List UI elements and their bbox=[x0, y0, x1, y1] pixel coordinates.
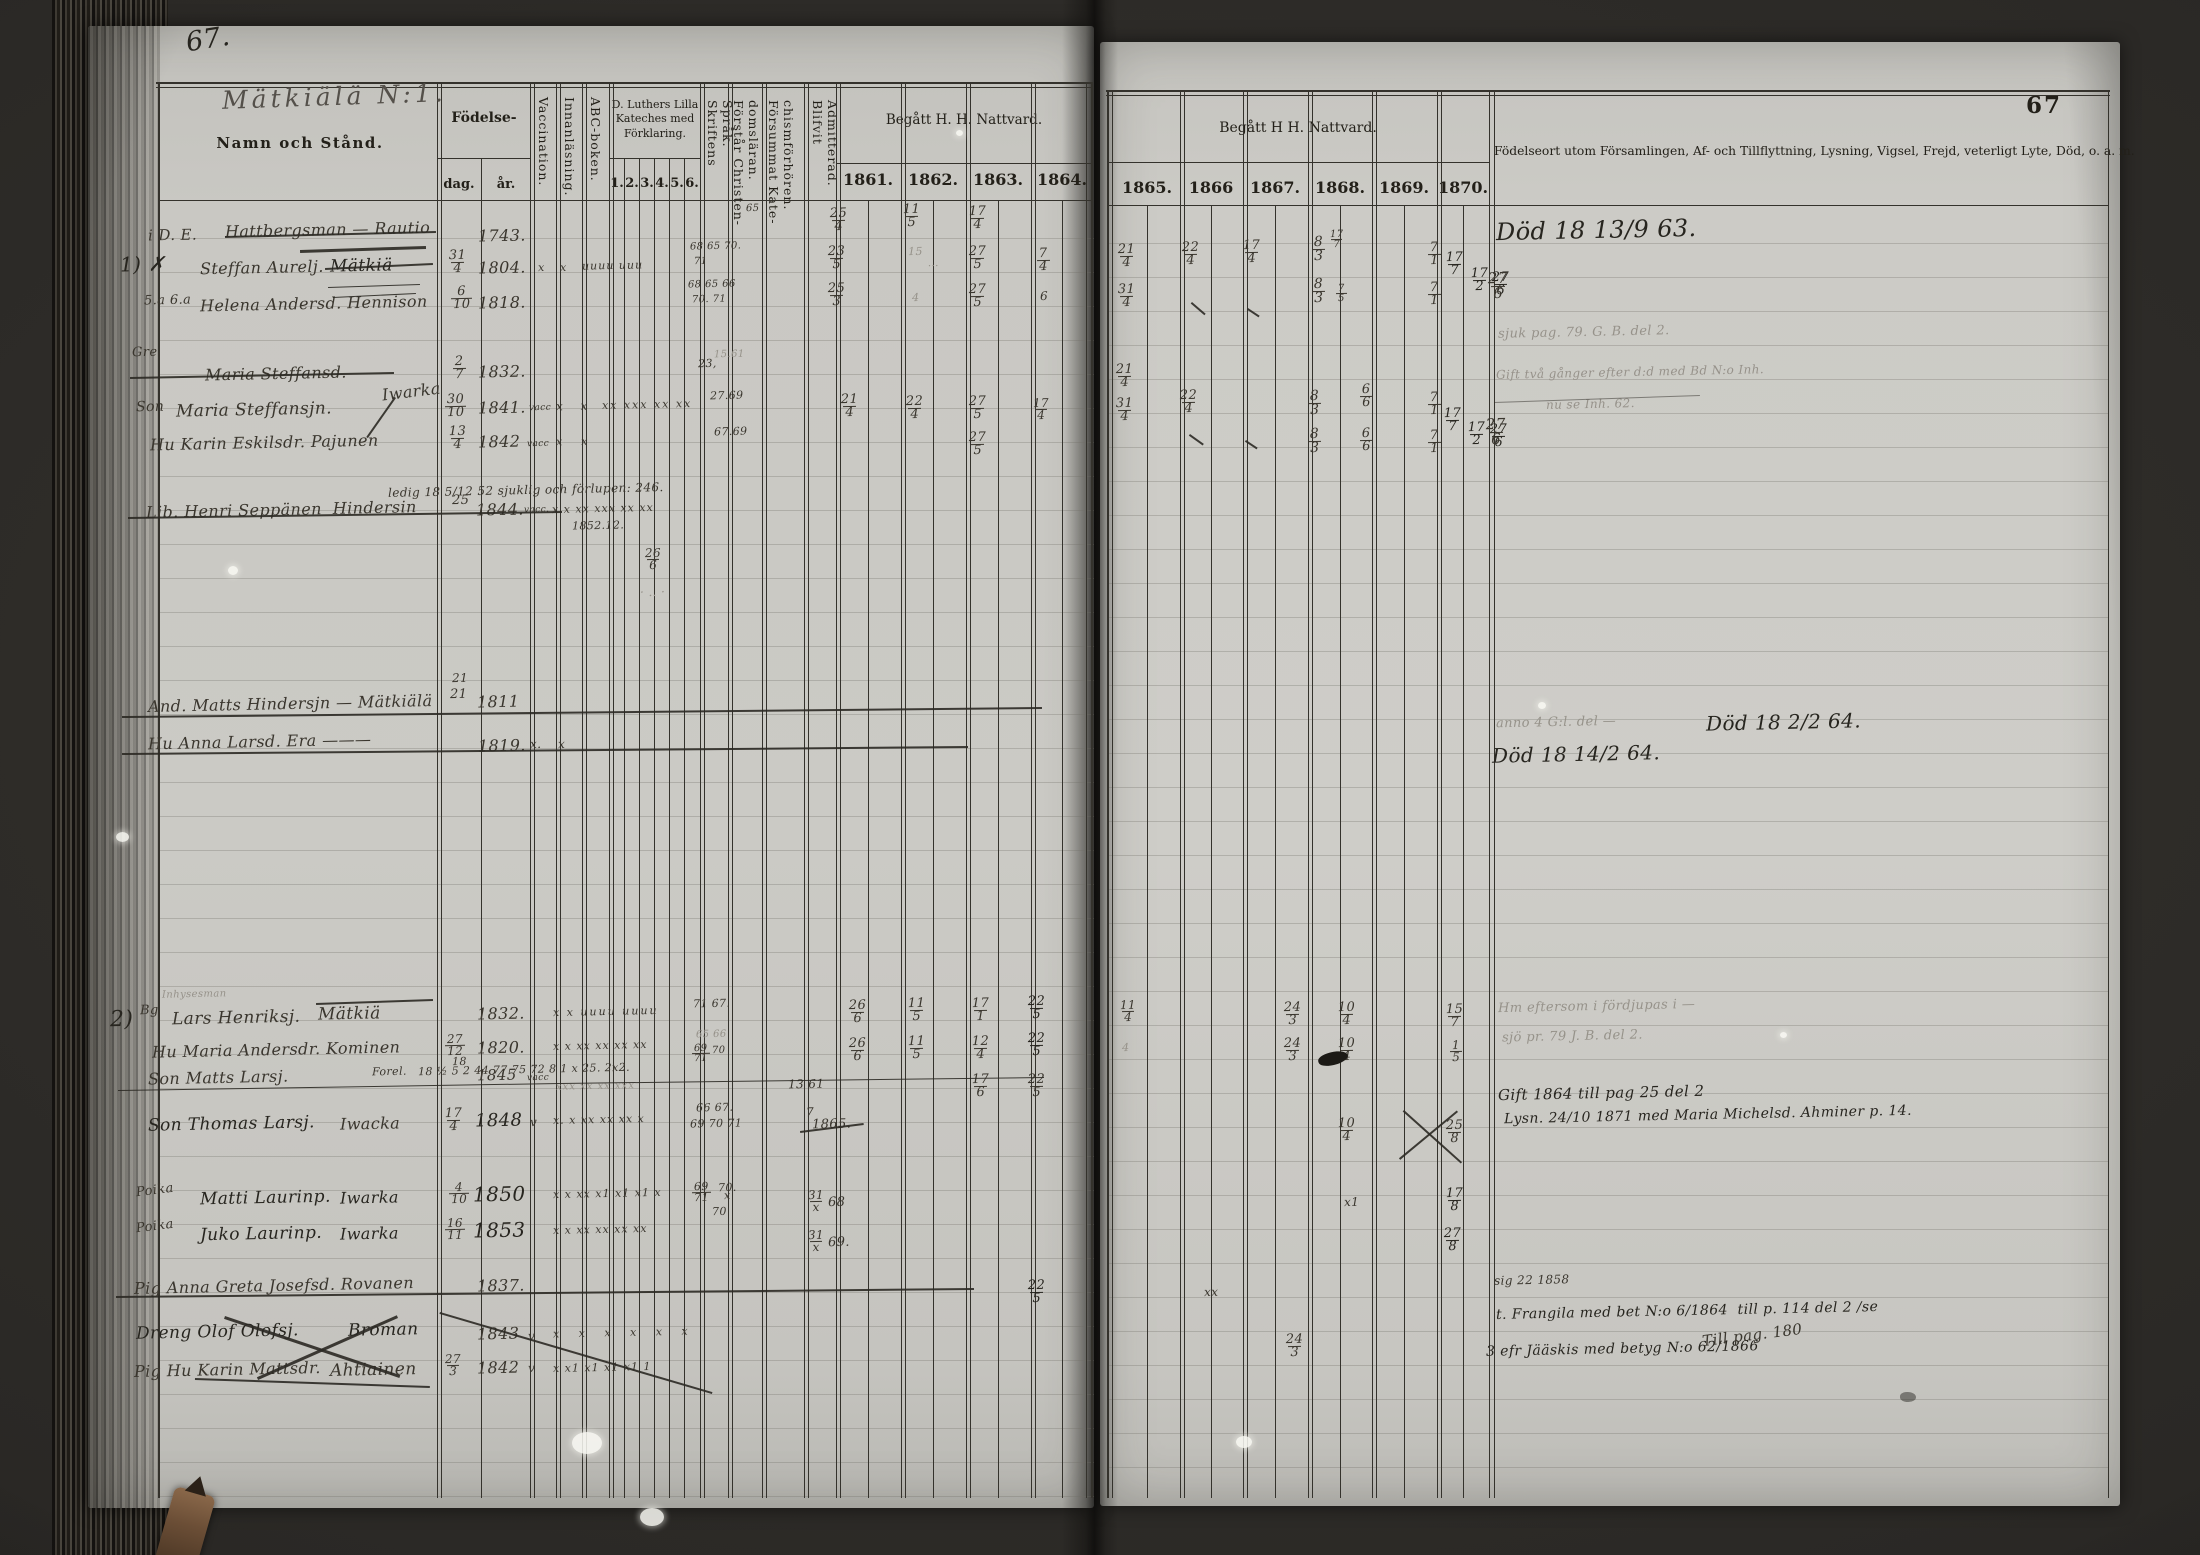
handwritten-text: 235 bbox=[828, 246, 846, 271]
grid-vline bbox=[2108, 92, 2109, 1498]
vaccination-header: Vaccination. bbox=[536, 97, 551, 186]
grid-vline bbox=[684, 158, 685, 1498]
handwritten-text: anno 4 G:l. del — bbox=[1496, 715, 1616, 731]
handwritten-text: 31x bbox=[808, 1190, 825, 1213]
handwritten-text: x x xx xxx xx xx bbox=[552, 502, 654, 516]
grid-vline bbox=[1404, 205, 1405, 1498]
grid-vline bbox=[966, 82, 967, 1498]
handwritten-text: 115 bbox=[903, 204, 921, 229]
dust-speck bbox=[640, 1508, 664, 1526]
handwritten-text: 177 bbox=[1444, 408, 1462, 433]
handwritten-text: vacc bbox=[527, 1074, 549, 1084]
handwritten-text: 25 bbox=[452, 494, 470, 508]
handwritten-text: 314 bbox=[449, 250, 467, 275]
handwritten-text: 258 bbox=[1446, 1120, 1464, 1145]
handwritten-text: 178 bbox=[1446, 1188, 1464, 1213]
handwritten-text: 1832. bbox=[477, 1006, 525, 1024]
handwritten-text: 15.61 bbox=[714, 350, 745, 361]
grid-vline bbox=[1441, 92, 1442, 1498]
grid-vline bbox=[728, 82, 729, 1498]
handwritten-text: 74 bbox=[1037, 248, 1050, 273]
handwritten-text: 1850 bbox=[473, 1183, 526, 1205]
handwritten-text: 70. bbox=[718, 1182, 737, 1194]
handwritten-text: 70. 71 bbox=[692, 295, 726, 306]
handwritten-text: 1852.12. bbox=[572, 519, 624, 532]
birth-year-header: år. bbox=[497, 177, 516, 192]
handwritten-text: 1853 bbox=[473, 1219, 526, 1241]
handwritten-text: 174 bbox=[445, 1108, 463, 1133]
handwritten-text: 266 bbox=[645, 548, 662, 571]
grid-vline bbox=[762, 82, 763, 1498]
handwritten-text: Iwarka bbox=[340, 1225, 399, 1243]
communion-header-left: Begått H. H. Nattvard. bbox=[886, 112, 1042, 128]
handwritten-text: x x xx x1 x1 x1 x bbox=[553, 1187, 662, 1201]
handwritten-text: 177 bbox=[1330, 230, 1344, 250]
handwritten-text: 214 bbox=[1116, 364, 1134, 389]
grid-vline bbox=[437, 82, 438, 1498]
handwritten-text: Iwacka bbox=[340, 1115, 400, 1133]
grid-hline bbox=[836, 163, 1093, 164]
handwritten-text: 1820. bbox=[477, 1040, 525, 1058]
grid-vline bbox=[933, 200, 934, 1498]
grid-vline bbox=[582, 82, 583, 1498]
dust-speck bbox=[1780, 1032, 1787, 1038]
handwritten-text: 75 bbox=[1336, 284, 1347, 304]
handwritten-text: x bbox=[538, 262, 545, 274]
grid-vline bbox=[1147, 205, 1148, 1498]
handwritten-text: 266 bbox=[849, 1038, 867, 1063]
handwritten-text: 71 bbox=[1428, 430, 1441, 455]
remarks-column-header: Födelseort utom Församlingen, Af- och Ti… bbox=[1494, 144, 2135, 158]
handwritten-text: 71 bbox=[1428, 282, 1441, 307]
handwritten-text: 4 bbox=[912, 292, 920, 304]
handwritten-text: 71 67. bbox=[693, 998, 731, 1010]
grid-vline bbox=[613, 82, 614, 1498]
abc-book-header: ABC-boken. bbox=[588, 97, 603, 182]
handwritten-text: 6971 bbox=[692, 1044, 710, 1064]
handwritten-text: 172 bbox=[1471, 268, 1489, 293]
grid-vline bbox=[1184, 92, 1185, 1498]
handwritten-text: 70 bbox=[712, 1046, 726, 1057]
handwritten-text: 68 65 70. bbox=[690, 241, 742, 253]
dust-speck bbox=[956, 130, 963, 136]
handwritten-text: 171 bbox=[972, 998, 990, 1023]
handwritten-text: 253 bbox=[828, 283, 846, 308]
grid-vline bbox=[624, 158, 625, 1498]
handwritten-text: Son bbox=[136, 400, 165, 415]
grid-vline bbox=[669, 158, 670, 1498]
reading-header: Innanläsning. bbox=[562, 97, 577, 196]
handwritten-text: 243 bbox=[1284, 1038, 1302, 1063]
grid-vline bbox=[654, 158, 655, 1498]
grid-vline bbox=[901, 82, 902, 1498]
grid-vline bbox=[1180, 92, 1181, 1498]
handwritten-text: 1842 bbox=[477, 1360, 520, 1378]
handwritten-text: 1743. bbox=[478, 228, 526, 246]
handwritten-text: x x xx xx xx xx bbox=[553, 1223, 648, 1237]
handwritten-text: 224 bbox=[1180, 390, 1198, 415]
handwritten-text: 6971 bbox=[692, 1182, 711, 1204]
grid-vline bbox=[556, 82, 557, 1498]
handwritten-text: 71 bbox=[1428, 392, 1441, 417]
dust-speck bbox=[1538, 702, 1546, 709]
handwritten-text: Forel. bbox=[372, 1066, 407, 1078]
handwritten-text: 174 bbox=[1243, 240, 1261, 265]
handwritten-text: Ahtiainen bbox=[330, 1361, 417, 1381]
grid-vline bbox=[1091, 82, 1093, 1498]
handwritten-text: 27.69 bbox=[710, 390, 744, 402]
handwritten-text: 225 bbox=[1028, 1280, 1046, 1305]
grid-vline bbox=[1112, 92, 1113, 1498]
handwritten-text: 69. bbox=[828, 1236, 850, 1250]
handwritten-text: Son Matts Larsj. bbox=[148, 1069, 289, 1089]
handwritten-text: 276 bbox=[1486, 418, 1506, 447]
handwritten-text: ··· bbox=[928, 262, 939, 273]
year-1862: 1862. bbox=[908, 170, 958, 189]
handwritten-text: 68 65 66 bbox=[688, 280, 736, 291]
handwritten-text: 1804. bbox=[478, 260, 526, 278]
handwritten-text: 1) ✗ bbox=[120, 254, 166, 276]
handwritten-text: Mätkiä bbox=[318, 1005, 381, 1024]
handwritten-text: 31x bbox=[808, 1230, 825, 1253]
handwritten-text: 27 bbox=[453, 356, 466, 381]
catechism-header-line1: D. Luthers Lilla bbox=[612, 98, 699, 111]
grid-vline bbox=[1275, 205, 1276, 1498]
handwritten-text: xx xxx xx xx bbox=[602, 398, 693, 411]
handwritten-text: 83 bbox=[1312, 236, 1326, 263]
grid-vline bbox=[905, 82, 906, 1498]
grid-vline bbox=[586, 82, 587, 1498]
handwritten-text: 65 bbox=[746, 204, 760, 215]
handwritten-text: Lars Henriksj. bbox=[172, 1009, 301, 1030]
handwritten-text: 275 bbox=[969, 396, 987, 421]
handwritten-text: 15 bbox=[908, 246, 923, 258]
grid-hline bbox=[1106, 90, 2110, 92]
handwritten-text: · ‥ · bbox=[640, 586, 666, 599]
handwritten-text: Inhysesman bbox=[162, 989, 227, 1001]
handwritten-text: Bg bbox=[140, 1004, 159, 1018]
handwritten-text: 6 bbox=[1040, 290, 1048, 303]
dust-speck bbox=[228, 566, 238, 575]
handwritten-text: 1845 bbox=[477, 1068, 517, 1085]
handwritten-text: 273 bbox=[445, 1354, 462, 1377]
handwritten-text: i D. E. bbox=[148, 227, 197, 244]
grid-vline bbox=[609, 82, 610, 1498]
grid-vline bbox=[1376, 92, 1377, 1498]
handwritten-text: x x x x x x bbox=[553, 1326, 696, 1341]
grid-vline bbox=[1086, 82, 1087, 1498]
handwritten-text: 71 bbox=[694, 257, 708, 268]
handwritten-text: 410 bbox=[449, 1182, 470, 1205]
handwritten-text: 134 bbox=[449, 426, 467, 451]
handwritten-text: 114 bbox=[1120, 1000, 1137, 1023]
handwritten-text: vacc bbox=[527, 440, 549, 450]
catechism-col-2: 2. bbox=[625, 176, 639, 191]
handwritten-text: Död 18 13/9 63. bbox=[1496, 216, 1697, 245]
year-1861: 1861. bbox=[843, 170, 893, 189]
dust-speck bbox=[1236, 1436, 1252, 1448]
handwritten-text: 3010 bbox=[445, 394, 467, 419]
year-1868: 1868. bbox=[1315, 178, 1365, 197]
grid-vline bbox=[732, 82, 733, 1498]
handwritten-text: 83 bbox=[1312, 278, 1326, 305]
handwritten-text: x x uuuu uuuu bbox=[553, 1005, 659, 1019]
catechism-header: D. Luthers Lilla Kateches med Förklaring… bbox=[609, 98, 701, 141]
year-1869: 1869. bbox=[1379, 178, 1429, 197]
grid-vline bbox=[481, 158, 482, 1498]
handwritten-text: 225 bbox=[1028, 1033, 1046, 1058]
handwritten-text: x1 bbox=[1344, 1196, 1359, 1209]
grid-vline bbox=[534, 82, 535, 1498]
handwritten-text: 1841. bbox=[478, 400, 526, 418]
handwritten-text: 2712 bbox=[445, 1034, 466, 1057]
handwritten-text: 124 bbox=[972, 1036, 990, 1061]
handwritten-text: Gre bbox=[132, 346, 158, 360]
handwritten-text: x bbox=[560, 262, 567, 274]
handwritten-text: 224 bbox=[906, 396, 924, 421]
grid-vline bbox=[1243, 92, 1244, 1498]
handwritten-text: 1811 bbox=[477, 694, 520, 712]
handwritten-text: 65 66 bbox=[696, 1030, 727, 1041]
handwritten-text: x x bbox=[556, 436, 592, 448]
name-column-header: Namn och Stånd. bbox=[216, 134, 383, 152]
handwritten-text: 69 70 71 bbox=[690, 1117, 742, 1130]
grid-vline bbox=[1247, 92, 1248, 1498]
handwritten-text: x. x xx xx xx x bbox=[553, 1113, 645, 1126]
handwritten-text: Maria Steffansjn. bbox=[176, 400, 332, 421]
birth-column-header: Födelse- bbox=[451, 110, 516, 126]
missed-catechism-header: Försummat Kate- chismförhören. bbox=[766, 100, 796, 225]
handwritten-text: 83 bbox=[1308, 390, 1322, 417]
year-1863: 1863. bbox=[973, 170, 1023, 189]
grid-vline bbox=[1062, 200, 1063, 1498]
handwritten-text: 243 bbox=[1284, 1002, 1302, 1027]
handwritten-text: Matti Laurinp. bbox=[200, 1189, 331, 1210]
grid-vline bbox=[998, 200, 999, 1498]
handwritten-text: 21 bbox=[452, 672, 468, 685]
grid-vline bbox=[441, 82, 442, 1498]
year-1870: 1870. bbox=[1438, 178, 1488, 197]
grid-vline bbox=[1308, 92, 1309, 1498]
handwritten-text: Död 18 2/2 64. bbox=[1706, 710, 1861, 734]
year-1865: 1865. bbox=[1122, 178, 1172, 197]
handwritten-text: 254 bbox=[830, 208, 848, 233]
grid-vline bbox=[808, 82, 809, 1498]
handwritten-text: xx bbox=[1204, 1286, 1219, 1299]
handwritten-text: x x xx xx xx xx bbox=[553, 1039, 648, 1053]
grid-vline bbox=[766, 82, 767, 1498]
handwritten-text: 104 bbox=[1338, 1002, 1356, 1027]
handwritten-text: 1842 bbox=[478, 434, 521, 452]
handwritten-text: 314 bbox=[1118, 284, 1136, 309]
year-1864: 1864. bbox=[1037, 170, 1087, 189]
handwritten-text: sig 22 1858 bbox=[1494, 1273, 1570, 1287]
handwritten-text: 1818. bbox=[478, 295, 526, 313]
scanned-book-spread: 67. 67 Mätkiälä N:1. Namn och Stånd. Föd… bbox=[0, 0, 2200, 1555]
grid-hline bbox=[437, 158, 530, 159]
catechism-col-4: 4. bbox=[655, 176, 669, 191]
handwritten-text: 157 bbox=[1446, 1004, 1464, 1029]
grid-hline bbox=[1107, 162, 1489, 163]
grid-hline bbox=[1107, 205, 2108, 206]
grid-vline bbox=[1211, 205, 1212, 1498]
handwritten-text: 276 bbox=[1488, 272, 1508, 301]
handwritten-text: 68 bbox=[828, 1196, 846, 1210]
grid-hline bbox=[609, 158, 700, 159]
handwritten-text: 21 bbox=[450, 688, 468, 702]
grid-vline bbox=[1372, 92, 1373, 1498]
grid-hline bbox=[1106, 95, 2110, 96]
handwritten-text: 115 bbox=[908, 998, 926, 1023]
handwritten-text: 66 bbox=[1360, 384, 1373, 409]
grid-vline bbox=[1107, 92, 1109, 1498]
handwritten-text: 66 bbox=[1360, 428, 1373, 453]
handwritten-text: Steffan Aurelj. bbox=[200, 259, 324, 278]
handwritten-text: 225 bbox=[1028, 996, 1046, 1021]
handwritten-text: 172 bbox=[1468, 422, 1486, 447]
grid-vline bbox=[868, 200, 869, 1498]
handwritten-text: 275 bbox=[969, 432, 987, 457]
handwritten-text: sjö pr. 79 J. B. del 2. bbox=[1502, 1029, 1643, 1046]
handwritten-text: 15 bbox=[1450, 1040, 1463, 1063]
catechism-col-5: 5. bbox=[670, 176, 684, 191]
handwritten-text: 610 bbox=[451, 286, 473, 311]
handwritten-text: 70 bbox=[712, 1206, 727, 1218]
handwritten-text: Iwarka bbox=[340, 1189, 399, 1207]
catechism-col-3: 3. bbox=[640, 176, 654, 191]
handwritten-text: 5.a 6.a bbox=[144, 294, 192, 309]
handwritten-text: 177 bbox=[1446, 252, 1464, 277]
year-1866: 1866 bbox=[1189, 178, 1234, 197]
handwritten-text: 1832. bbox=[478, 364, 526, 382]
grid-vline bbox=[639, 158, 640, 1498]
dust-speck bbox=[116, 832, 129, 842]
grid-vline bbox=[1489, 92, 1490, 1498]
handwritten-text: 314 bbox=[1116, 398, 1134, 423]
handwritten-text: 4 bbox=[1122, 1042, 1130, 1054]
handwritten-text: vacc bbox=[529, 404, 551, 414]
handwritten-text: 71 bbox=[1428, 242, 1441, 267]
handwritten-text: 243 bbox=[1286, 1334, 1304, 1359]
handwritten-text: 214 bbox=[1118, 244, 1136, 269]
grid-vline bbox=[560, 82, 561, 1498]
printed-page-number: 67 bbox=[2026, 92, 2062, 119]
handwritten-text: 278 bbox=[1444, 1228, 1462, 1253]
birth-day-header: dag. bbox=[443, 177, 474, 192]
handwritten-text: v bbox=[528, 1362, 535, 1375]
handwritten-text: Son Thomas Larsj. bbox=[148, 1114, 315, 1135]
catechism-header-line2: Kateches med bbox=[616, 112, 695, 125]
catechism-col-6: 6. bbox=[685, 176, 699, 191]
catechism-header-line3: Förklaring. bbox=[624, 127, 686, 140]
handwritten-text: 224 bbox=[1182, 242, 1200, 267]
smudge bbox=[1900, 1392, 1916, 1402]
handwritten-text: uuuu uuu bbox=[582, 259, 643, 272]
year-1867: 1867. bbox=[1250, 178, 1300, 197]
handwritten-text: 1611 bbox=[445, 1218, 466, 1241]
handwritten-text: Död 18 14/2 64. bbox=[1492, 742, 1661, 767]
grid-vline bbox=[1463, 205, 1464, 1498]
dust-speck bbox=[572, 1432, 602, 1454]
handwritten-text: 174 bbox=[969, 206, 987, 231]
handwritten-text: 1844. bbox=[476, 502, 524, 520]
handwritten-text: 275 bbox=[969, 246, 987, 271]
grid-vline bbox=[804, 82, 805, 1498]
handwritten-text: 174 bbox=[1033, 398, 1050, 421]
grid-vline bbox=[530, 82, 531, 1498]
handwritten-text: v bbox=[530, 1116, 537, 1129]
grid-vline bbox=[1340, 205, 1341, 1498]
handwritten-page-number: 67. bbox=[184, 23, 232, 58]
handwritten-text: 2) bbox=[110, 1008, 134, 1032]
handwritten-text: 214 bbox=[841, 394, 859, 419]
handwritten-text: 66 67. bbox=[696, 1102, 734, 1114]
handwritten-text: 83 bbox=[1308, 428, 1322, 455]
handwritten-text: 115 bbox=[908, 1036, 926, 1061]
handwritten-text: 1848 bbox=[475, 1112, 523, 1132]
handwritten-text: Juko Laurinp. bbox=[200, 1225, 322, 1245]
handwritten-text: 67.69 bbox=[714, 426, 748, 438]
handwritten-text: 104 bbox=[1338, 1118, 1356, 1143]
handwritten-text: x x bbox=[556, 400, 595, 413]
handwritten-text: 1819. bbox=[478, 738, 526, 756]
handwritten-text: 275 bbox=[969, 284, 987, 309]
grid-hline bbox=[158, 200, 1093, 201]
handwritten-text: 266 bbox=[849, 1000, 867, 1025]
